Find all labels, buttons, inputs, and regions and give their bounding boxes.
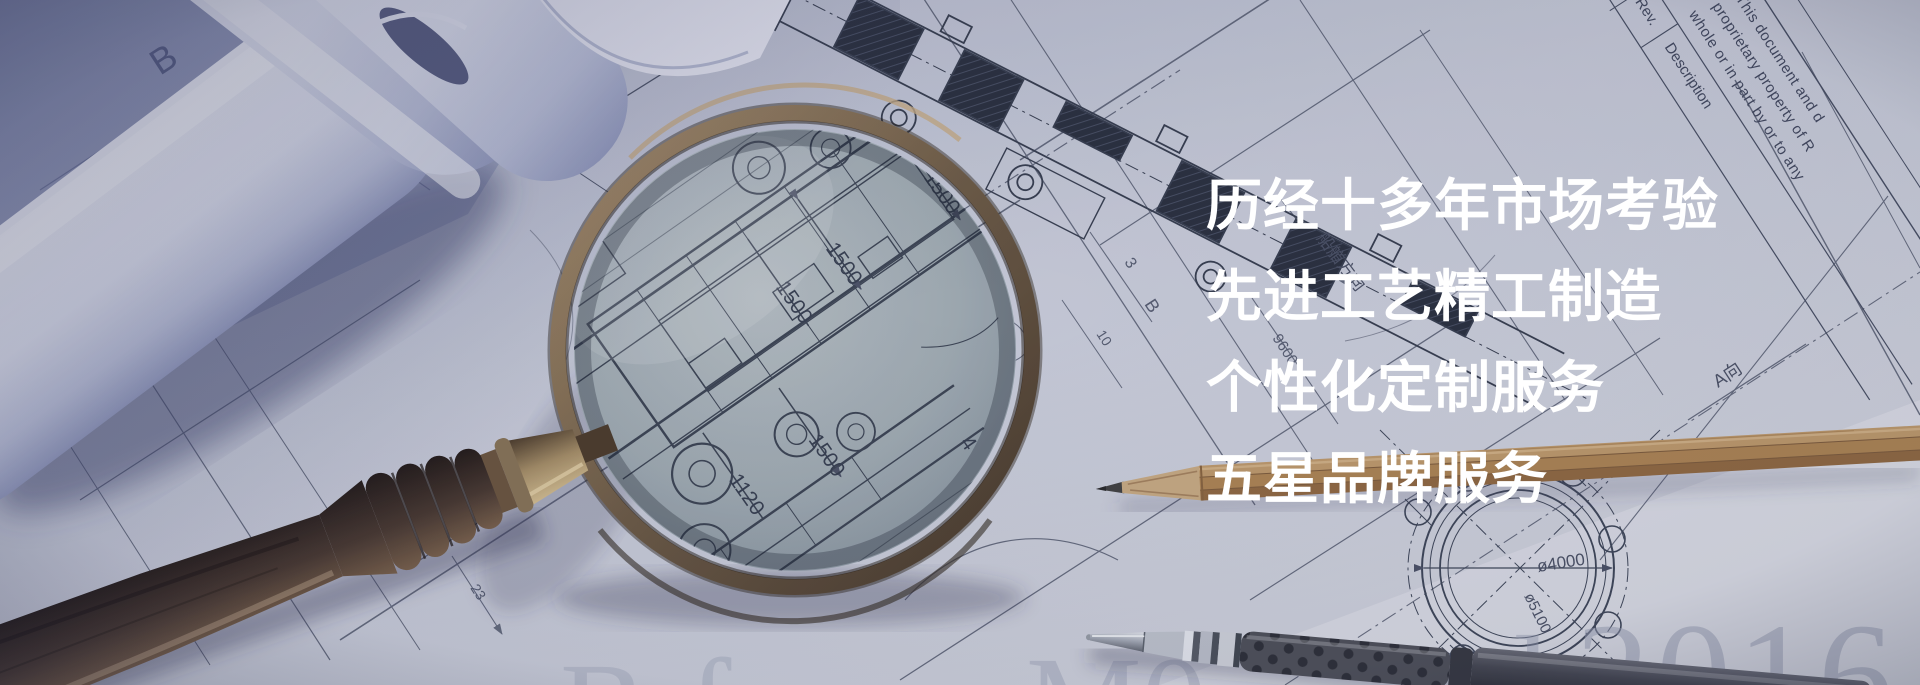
headline-block: 历经十多年市场考验 先进工艺精工制造 个性化定制服务 五星品牌服务 (1206, 160, 1719, 524)
headline-line-4: 五星品牌服务 (1206, 433, 1719, 524)
headline-line-2: 先进工艺精工制造 (1206, 251, 1719, 342)
topleft-shade-overlay (0, 0, 900, 685)
headline-line-3: 个性化定制服务 (1206, 342, 1719, 433)
headline-line-1: 历经十多年市场考验 (1206, 160, 1719, 251)
hero-banner: 3900 ø4000 ø5100 This document and d pro… (0, 0, 1920, 685)
